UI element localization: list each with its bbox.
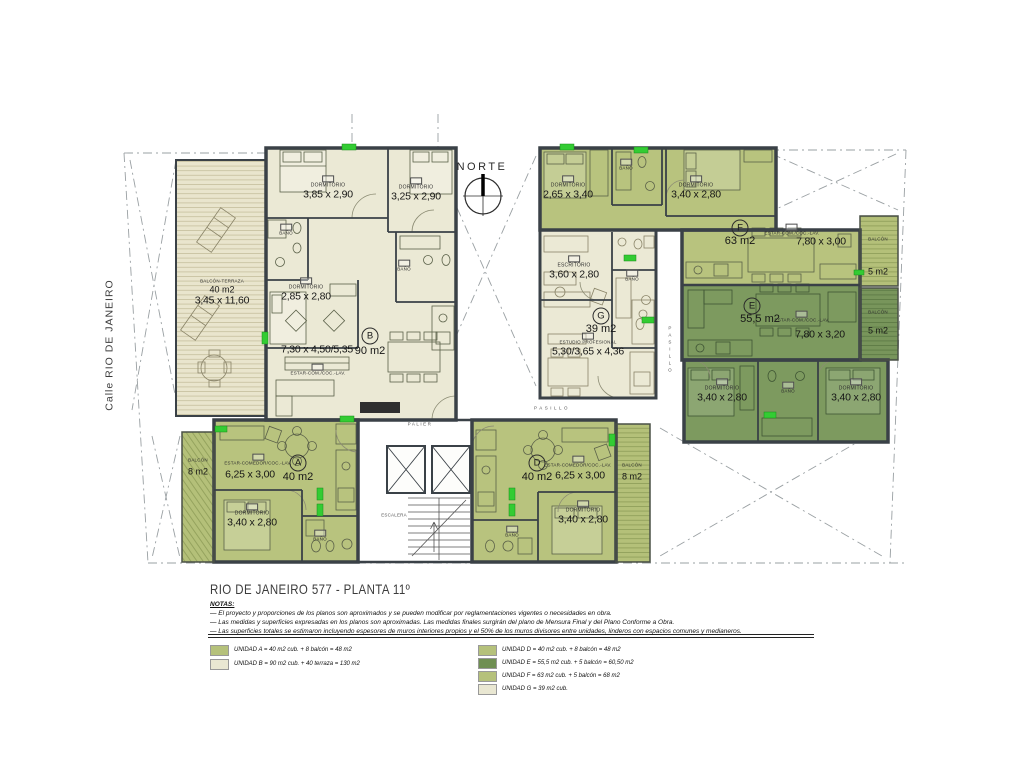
f-estar-dim: 7,80 x 3,00 — [796, 236, 846, 247]
legend-label-unit-d: UNIDAD D = 40 m2 cub. + 8 balcón = 48 m2 — [502, 647, 621, 653]
legend-swatch-unit-b — [210, 659, 229, 670]
room-e-estar: ESTAR-COM./COC.-LAV. — [775, 311, 830, 324]
room-b-dorm2: DORMITORIO 3,25 x 2,90 — [391, 177, 441, 202]
north-label: NORTE — [457, 162, 508, 174]
room-tag — [312, 364, 324, 371]
floor-plan-page: Calle RIO DE JANEIRO NORTE DORMITORIO 3,… — [0, 0, 1024, 768]
e-balcon-area: 5 m2 — [868, 326, 888, 335]
street-label: Calle RIO DE JANEIRO — [104, 279, 115, 410]
unit-b-area: 90 m2 — [355, 346, 386, 358]
room-e-dorm2: DORMITORIO 3,40 x 2,80 — [831, 378, 881, 403]
room-tag — [398, 260, 410, 267]
unit-f-badge: F — [732, 220, 749, 237]
room-d-dorm: DORMITORIO 3,40 x 2,80 — [558, 500, 608, 525]
room-g-escritorio: ESCRITORIO 3,60 x 2,80 — [549, 255, 599, 280]
stairs-icon — [408, 498, 470, 560]
room-tag — [562, 175, 574, 182]
room-tag — [246, 503, 258, 510]
room-tag — [786, 224, 798, 231]
divider-rule — [208, 634, 814, 638]
unit-g-badge: G — [593, 308, 610, 325]
room-tag — [506, 526, 518, 533]
legend-swatch-unit-a — [210, 645, 229, 656]
room-g-estudio: ESTUDIO PROFESIONAL 5,30/3,65 x 4,36 — [552, 333, 624, 358]
room-a-estar: ESTAR-COMEDOR/COC.-LAV. — [224, 454, 291, 467]
room-tag — [782, 382, 794, 389]
legend-label-unit-a: UNIDAD A = 40 m2 cub. + 8 balcón = 48 m2 — [234, 647, 352, 653]
room-tag — [577, 500, 589, 507]
room-f-dorm1: DORMITORIO 2,65 x 3,40 — [543, 175, 593, 200]
d-balcon-area: 8 m2 — [622, 472, 642, 481]
room-b-estar: ESTAR-COM./COC.-LAV. — [291, 364, 346, 377]
d-balcon-label: BALCÓN — [622, 464, 642, 469]
room-f-estar: ESTAR-COM./COC.-LAV. — [765, 224, 820, 237]
room-tag — [626, 270, 638, 277]
north-compass-icon — [463, 174, 503, 216]
room-f-bano: BAÑO — [619, 159, 633, 172]
room-d-estar: ESTAR-COMEDOR/COC.-LAV. — [544, 456, 611, 469]
note-line: — Las medidas y superficies expresadas e… — [210, 619, 674, 626]
d-estar-dim: 6,25 x 3,00 — [555, 470, 605, 481]
unit-e-badge: E — [744, 298, 761, 315]
room-a-bano: BAÑO — [313, 530, 327, 543]
room-e-bano: BAÑO — [781, 382, 795, 395]
unit-f-area: 63 m2 — [725, 236, 756, 248]
room-b-bano2: BAÑO — [397, 260, 411, 273]
unit-d-area: 40 m2 — [522, 472, 553, 484]
room-tag — [410, 177, 422, 184]
e-balcon-label: BALCÓN — [868, 311, 888, 316]
palier-label: PALIER — [408, 423, 433, 428]
legend-label-unit-b: UNIDAD B = 90 m2 cub. + 40 terraza = 130… — [234, 661, 360, 667]
legend-swatch-unit-d — [478, 645, 497, 656]
room-tag — [582, 333, 594, 340]
legend-swatch-unit-f — [478, 671, 497, 682]
unit-b-badge: B — [362, 328, 379, 345]
room-tag — [322, 175, 334, 182]
page-title: RIO DE JANEIRO 577 - PLANTA 11º — [210, 581, 410, 597]
legend-label-unit-g: UNIDAD G = 39 m2 cub. — [502, 686, 568, 692]
room-tag — [690, 175, 702, 182]
room-tag — [620, 159, 632, 166]
room-b-dorm1: DORMITORIO 3,85 x 2,90 — [303, 175, 353, 200]
unit-a-badge: A — [290, 455, 307, 472]
room-tag — [314, 530, 326, 537]
room-d-bano: BAÑO — [505, 526, 519, 539]
room-b-dorm3: DORMITORIO 2,85 x 2,80 — [281, 277, 331, 302]
a-estar-dim: 6,25 x 3,00 — [225, 469, 275, 480]
room-tag — [300, 277, 312, 284]
legend-swatch-unit-g — [478, 684, 497, 695]
room-tag — [796, 311, 808, 318]
room-f-dorm2: DORMITORIO 3,40 x 2,80 — [671, 175, 721, 200]
room-tag — [850, 378, 862, 385]
room-g-bano: BAÑO — [625, 270, 639, 283]
f-balcon-label: BALCÓN — [868, 238, 888, 243]
legend-label-unit-f: UNIDAD F = 63 m2 cub. + 5 balcón = 68 m2 — [502, 673, 620, 679]
room-tag — [572, 456, 584, 463]
legend-swatch-unit-e — [478, 658, 497, 669]
elevator-stairs-core — [387, 446, 470, 560]
escalera-label: ESCALERA — [381, 514, 407, 519]
b-estar-dim: 7,30 x 4,50/5,35 — [281, 344, 353, 355]
unit-a-area: 40 m2 — [283, 472, 314, 484]
a-balcon-area: 8 m2 — [188, 467, 208, 476]
e-estar-dim: 7,80 x 3,20 — [795, 329, 845, 340]
notes-heading: NOTAS: — [210, 601, 234, 608]
room-b-bano1: BAÑO — [279, 224, 293, 237]
legend-label-unit-e: UNIDAD E = 55,5 m2 cub. + 5 balcón = 60,… — [502, 660, 634, 666]
f-balcon-area: 5 m2 — [868, 267, 888, 276]
pasillo-vertical-label: PASILLO — [667, 326, 672, 375]
room-a-dorm: DORMITORIO 3,40 x 2,80 — [227, 503, 277, 528]
room-tag — [280, 224, 292, 231]
a-balcon-label: BALCÓN — [188, 459, 208, 464]
note-line: — El proyecto y proporciones de los plan… — [210, 610, 612, 617]
pasillo-horizontal-label: PASILLO — [534, 407, 570, 412]
unit-d-badge: D — [529, 455, 546, 472]
b-terraza-label: BALCÓN-TERRAZA 40 m2 3,45 x 11,60 — [195, 279, 250, 306]
room-tag — [716, 378, 728, 385]
room-tag — [252, 454, 264, 461]
room-tag — [568, 255, 580, 262]
room-e-dorm1: DORMITORIO 3,40 x 2,80 — [697, 378, 747, 403]
